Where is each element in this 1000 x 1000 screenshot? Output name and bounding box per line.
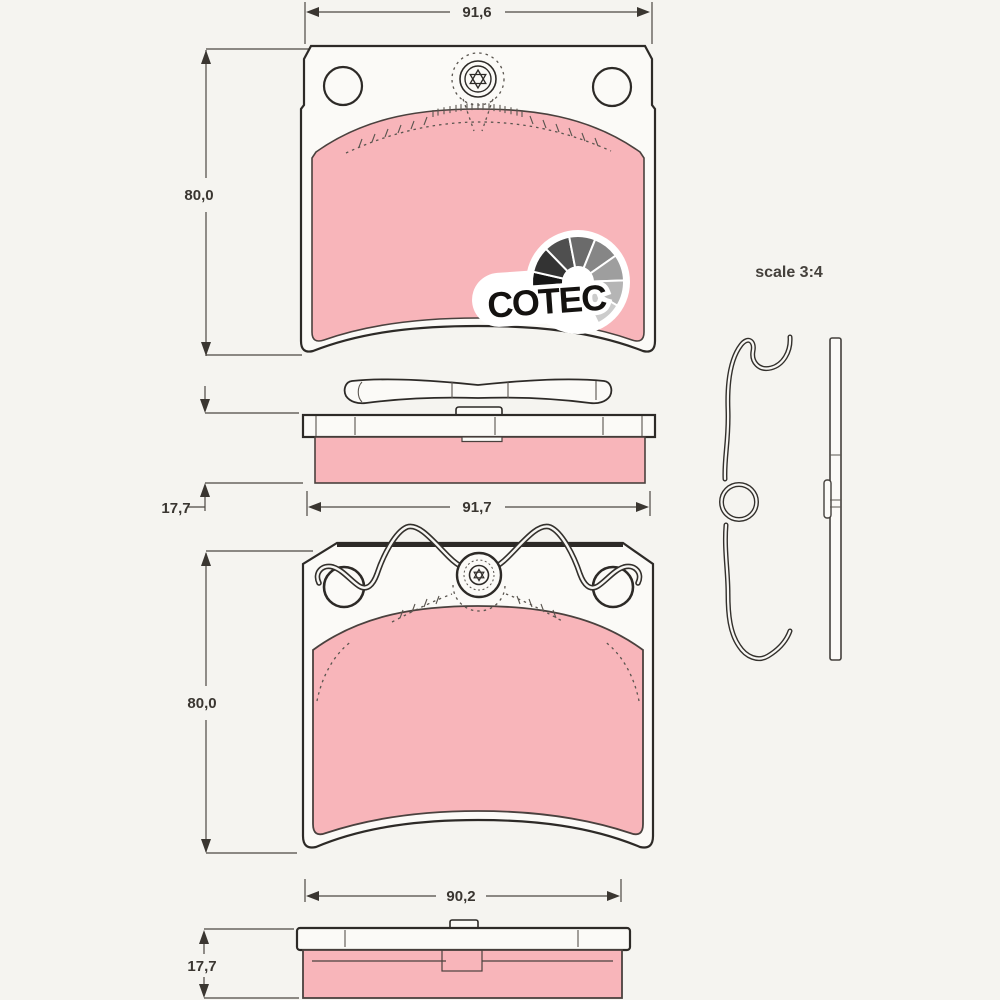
friction-material-side [315, 437, 645, 483]
mounting-hole-right [593, 68, 631, 106]
dim-label-bottom-height: 80,0 [187, 695, 216, 712]
logo-wordmark: COTEC [486, 277, 609, 326]
dim-label-bottom-width: 90,2 [446, 888, 475, 905]
friction-material-bottom [313, 606, 643, 834]
dimension-top-side-thickness: 17,7 [161, 386, 303, 517]
arrow-right-icon [637, 7, 650, 17]
pad-front-view-top: COTEC [301, 46, 655, 352]
backing-plate-side [303, 415, 655, 437]
dimension-bottom-pad-height: 80,0 [187, 551, 313, 853]
dim-label-side-length: 91,7 [462, 499, 491, 516]
dim-label-top-width: 91,6 [462, 4, 491, 21]
friction-notch [462, 437, 502, 442]
dimension-bottom-side-thickness: 17,7 [187, 929, 299, 998]
anti-squeal-shim [345, 379, 612, 403]
pad-front-view-bottom [303, 526, 653, 847]
mounting-hole-left [324, 67, 362, 105]
dim-label-side-thickness-top: 17,7 [161, 500, 190, 517]
dimension-top-pad-width: 91,6 [305, 2, 652, 44]
pad-side-view-bottom [297, 920, 630, 998]
dim-label-top-height: 80,0 [184, 187, 213, 204]
accessory-spring-clip [722, 337, 791, 659]
accessory-shim-bar [824, 338, 841, 660]
friction-material-side-bottom [303, 950, 622, 998]
brake-pad-technical-drawing: 91,6 80,0 [0, 0, 1000, 1000]
dimension-top-side-length: 91,7 [307, 491, 650, 516]
scale-note: scale 3:4 [755, 264, 823, 281]
dim-label-side-thickness-bottom: 17,7 [187, 958, 216, 975]
pad-side-view-top [303, 379, 655, 483]
drawing-canvas: 91,6 80,0 [0, 0, 1000, 1000]
dimension-top-pad-height: 80,0 [184, 49, 313, 356]
arrow-left-icon [306, 7, 319, 17]
backing-plate-side-bottom [297, 928, 630, 950]
arrow-up-icon [201, 50, 211, 64]
arrow-down-icon [201, 342, 211, 356]
center-boss-bottom [457, 553, 501, 597]
dimension-bottom-side-width: 90,2 [305, 879, 621, 905]
